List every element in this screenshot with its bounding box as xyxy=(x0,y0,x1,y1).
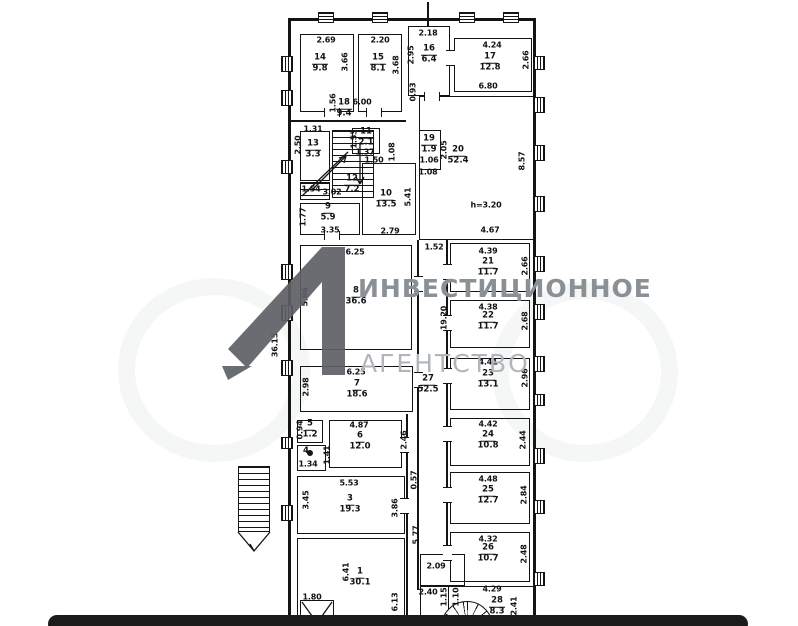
watermark-brand-text: ИНВЕСТИЦИОННОЕ xyxy=(358,274,652,303)
agency-logo-icon xyxy=(0,0,798,626)
floor-plan-image: 149.8158.1166.41712.8189.4133.3112.1127.… xyxy=(0,0,798,626)
bottom-bar[interactable] xyxy=(48,615,748,626)
watermark-brand-subtext: АГЕНТСТВО xyxy=(360,349,530,378)
